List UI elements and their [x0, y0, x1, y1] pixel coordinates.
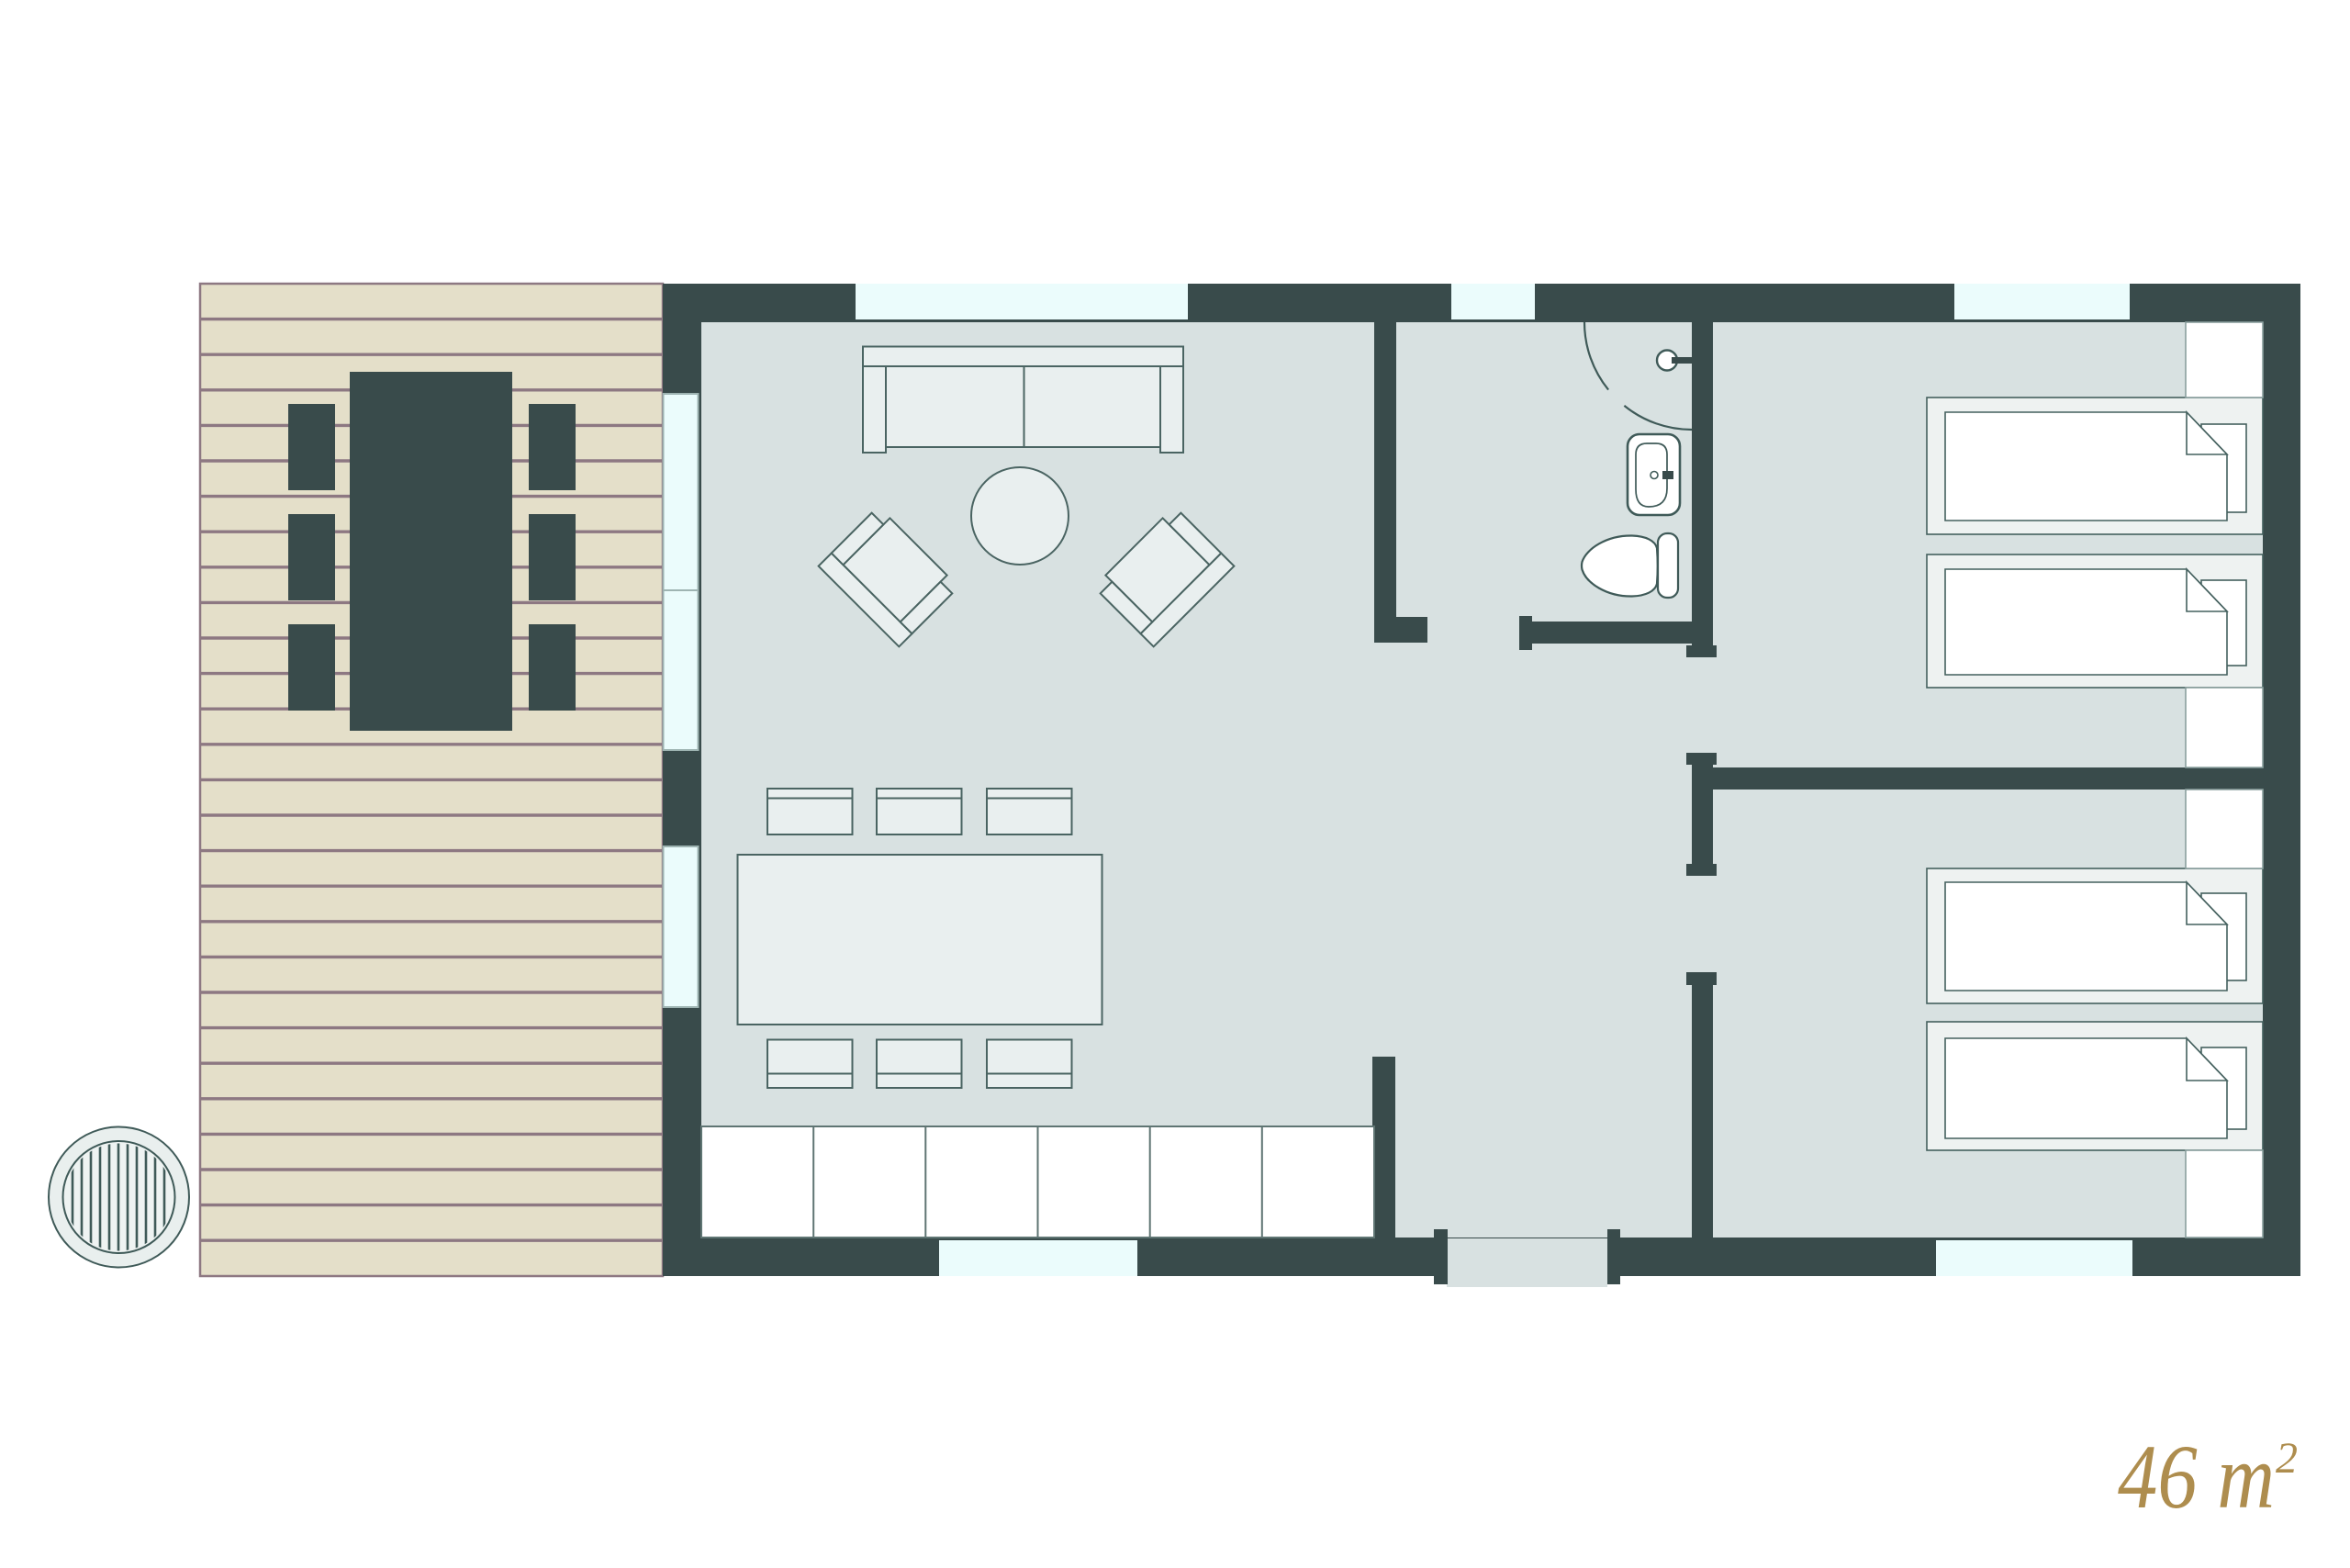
svg-text:46 m: 46 m: [2118, 1426, 2275, 1528]
svg-text:2: 2: [2276, 1434, 2298, 1483]
